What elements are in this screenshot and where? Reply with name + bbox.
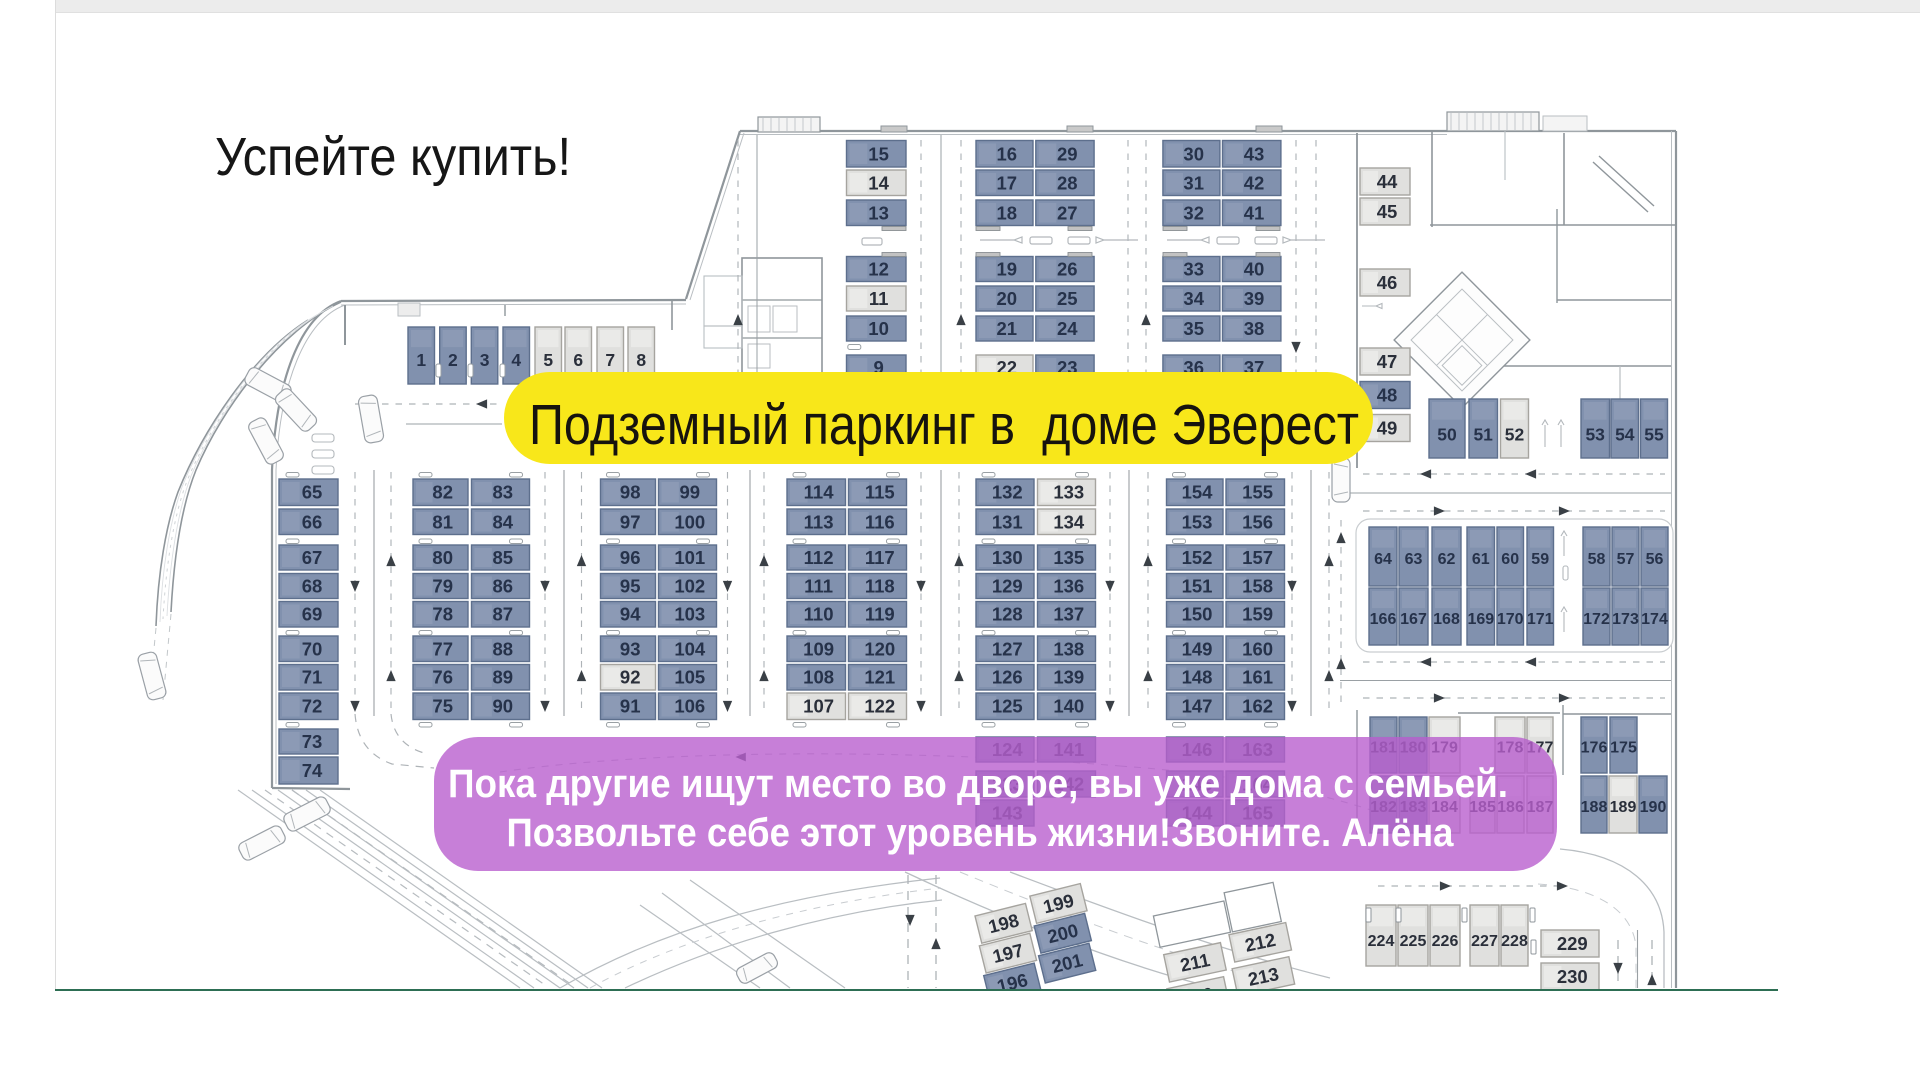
- svg-text:44: 44: [1377, 171, 1398, 192]
- svg-text:95: 95: [620, 576, 641, 597]
- svg-text:26: 26: [1057, 259, 1078, 280]
- svg-text:40: 40: [1244, 259, 1265, 280]
- svg-text:109: 109: [803, 638, 834, 659]
- svg-text:96: 96: [620, 547, 641, 568]
- svg-text:10: 10: [868, 318, 889, 339]
- svg-text:59: 59: [1531, 551, 1549, 568]
- svg-text:149: 149: [1182, 638, 1213, 659]
- svg-text:12: 12: [868, 259, 889, 280]
- svg-text:8: 8: [636, 350, 646, 370]
- svg-text:51: 51: [1473, 424, 1493, 444]
- svg-text:48: 48: [1377, 385, 1398, 406]
- svg-text:77: 77: [432, 638, 453, 659]
- svg-text:87: 87: [493, 604, 514, 625]
- svg-text:137: 137: [1053, 604, 1084, 625]
- svg-text:89: 89: [493, 667, 514, 688]
- svg-text:125: 125: [992, 696, 1023, 717]
- svg-text:189: 189: [1610, 799, 1637, 816]
- svg-text:138: 138: [1053, 638, 1084, 659]
- svg-text:60: 60: [1501, 551, 1519, 568]
- svg-text:172: 172: [1583, 611, 1610, 628]
- svg-text:83: 83: [493, 482, 514, 503]
- svg-text:56: 56: [1646, 551, 1664, 568]
- svg-text:91: 91: [620, 696, 641, 717]
- svg-text:112: 112: [804, 547, 834, 568]
- svg-text:72: 72: [302, 696, 323, 717]
- svg-text:92: 92: [620, 667, 641, 688]
- svg-text:162: 162: [1242, 696, 1273, 717]
- svg-text:42: 42: [1244, 172, 1265, 193]
- svg-text:2: 2: [448, 350, 458, 370]
- svg-text:171: 171: [1527, 611, 1554, 628]
- svg-text:116: 116: [865, 511, 895, 532]
- svg-text:155: 155: [1242, 482, 1273, 503]
- svg-text:170: 170: [1497, 611, 1524, 628]
- svg-text:28: 28: [1057, 172, 1078, 193]
- svg-text:99: 99: [680, 482, 701, 503]
- svg-text:33: 33: [1183, 259, 1204, 280]
- svg-text:62: 62: [1438, 551, 1456, 568]
- svg-text:160: 160: [1242, 638, 1273, 659]
- svg-text:68: 68: [302, 576, 323, 597]
- svg-text:31: 31: [1183, 172, 1204, 193]
- svg-text:94: 94: [620, 604, 641, 625]
- svg-text:90: 90: [493, 696, 514, 717]
- svg-text:86: 86: [493, 576, 514, 597]
- svg-text:153: 153: [1182, 511, 1213, 532]
- svg-text:1: 1: [416, 350, 426, 370]
- svg-text:3: 3: [480, 350, 490, 370]
- svg-text:27: 27: [1057, 202, 1078, 223]
- svg-text:122: 122: [864, 696, 895, 717]
- svg-text:147: 147: [1182, 696, 1213, 717]
- svg-text:49: 49: [1377, 418, 1398, 439]
- svg-text:32: 32: [1183, 202, 1204, 223]
- svg-text:46: 46: [1377, 272, 1398, 293]
- svg-text:169: 169: [1467, 611, 1494, 628]
- svg-text:131: 131: [992, 511, 1023, 532]
- svg-text:230: 230: [1557, 966, 1588, 987]
- svg-text:71: 71: [302, 667, 323, 688]
- svg-text:78: 78: [432, 604, 453, 625]
- svg-text:21: 21: [997, 318, 1018, 339]
- svg-text:85: 85: [493, 547, 514, 568]
- svg-text:224: 224: [1368, 933, 1395, 950]
- svg-text:229: 229: [1557, 933, 1588, 954]
- svg-text:98: 98: [620, 482, 641, 503]
- svg-text:65: 65: [302, 482, 323, 503]
- svg-text:104: 104: [674, 638, 706, 659]
- svg-text:6: 6: [573, 350, 583, 370]
- svg-text:66: 66: [302, 511, 323, 532]
- svg-text:43: 43: [1244, 143, 1265, 164]
- svg-text:76: 76: [432, 667, 453, 688]
- svg-text:173: 173: [1612, 611, 1639, 628]
- svg-text:127: 127: [992, 638, 1023, 659]
- svg-text:148: 148: [1182, 667, 1213, 688]
- svg-text:45: 45: [1377, 201, 1398, 222]
- svg-text:188: 188: [1581, 799, 1608, 816]
- svg-text:161: 161: [1242, 667, 1273, 688]
- svg-text:52: 52: [1505, 424, 1525, 444]
- svg-text:54: 54: [1615, 424, 1635, 444]
- svg-text:166: 166: [1370, 611, 1397, 628]
- svg-text:136: 136: [1053, 576, 1084, 597]
- svg-text:139: 139: [1053, 667, 1084, 688]
- svg-text:100: 100: [674, 511, 705, 532]
- svg-text:7: 7: [605, 350, 615, 370]
- svg-text:19: 19: [997, 259, 1018, 280]
- svg-text:97: 97: [620, 511, 641, 532]
- svg-text:103: 103: [674, 604, 705, 625]
- svg-text:113: 113: [804, 511, 834, 532]
- svg-text:11: 11: [869, 288, 889, 309]
- svg-text:151: 151: [1182, 576, 1213, 597]
- svg-text:117: 117: [865, 547, 895, 568]
- svg-text:35: 35: [1183, 318, 1204, 339]
- svg-text:39: 39: [1244, 288, 1265, 309]
- svg-text:134: 134: [1053, 511, 1085, 532]
- svg-text:107: 107: [803, 696, 834, 717]
- svg-text:70: 70: [302, 638, 323, 659]
- svg-text:88: 88: [493, 638, 514, 659]
- svg-text:154: 154: [1182, 482, 1214, 503]
- svg-text:64: 64: [1374, 551, 1392, 568]
- svg-text:15: 15: [868, 143, 889, 164]
- svg-text:75: 75: [432, 696, 453, 717]
- svg-text:129: 129: [992, 576, 1023, 597]
- svg-text:174: 174: [1641, 611, 1668, 628]
- svg-text:158: 158: [1242, 576, 1273, 597]
- svg-text:38: 38: [1244, 318, 1265, 339]
- svg-text:55: 55: [1644, 424, 1664, 444]
- svg-text:67: 67: [302, 547, 323, 568]
- svg-text:93: 93: [620, 638, 641, 659]
- svg-text:5: 5: [543, 350, 553, 370]
- svg-text:Успейте купить!: Успейте купить!: [215, 127, 571, 187]
- svg-text:58: 58: [1588, 551, 1606, 568]
- svg-text:79: 79: [432, 576, 453, 597]
- svg-text:128: 128: [992, 604, 1023, 625]
- svg-text:14: 14: [868, 172, 889, 193]
- svg-text:157: 157: [1242, 547, 1273, 568]
- svg-text:34: 34: [1183, 288, 1204, 309]
- svg-text:Позвольте себе этот уровень жи: Позвольте себе этот уровень жизни!Звонит…: [507, 811, 1455, 855]
- svg-text:228: 228: [1501, 933, 1528, 950]
- svg-text:80: 80: [432, 547, 453, 568]
- svg-text:168: 168: [1433, 611, 1460, 628]
- svg-text:132: 132: [992, 482, 1023, 503]
- svg-text:105: 105: [674, 667, 705, 688]
- svg-text:18: 18: [997, 202, 1018, 223]
- svg-text:119: 119: [865, 604, 895, 625]
- svg-text:81: 81: [432, 511, 453, 532]
- svg-text:4: 4: [511, 350, 521, 370]
- svg-text:133: 133: [1053, 482, 1084, 503]
- svg-text:61: 61: [1472, 551, 1490, 568]
- svg-text:57: 57: [1617, 551, 1635, 568]
- svg-text:110: 110: [804, 604, 834, 625]
- svg-text:106: 106: [674, 696, 705, 717]
- svg-text:176: 176: [1581, 739, 1608, 756]
- svg-text:20: 20: [997, 288, 1018, 309]
- svg-text:74: 74: [302, 760, 323, 781]
- svg-text:82: 82: [432, 482, 453, 503]
- svg-text:135: 135: [1053, 547, 1084, 568]
- svg-text:175: 175: [1610, 739, 1637, 756]
- svg-text:159: 159: [1242, 604, 1273, 625]
- svg-text:156: 156: [1242, 511, 1273, 532]
- svg-text:167: 167: [1400, 611, 1427, 628]
- svg-text:108: 108: [803, 667, 834, 688]
- svg-text:Пока другие ищут место во двор: Пока другие ищут место во дворе, вы уже …: [448, 762, 1508, 806]
- svg-text:118: 118: [865, 576, 895, 597]
- svg-text:25: 25: [1057, 288, 1078, 309]
- svg-text:29: 29: [1057, 143, 1078, 164]
- svg-text:17: 17: [997, 172, 1018, 193]
- svg-text:30: 30: [1183, 143, 1204, 164]
- svg-text:150: 150: [1182, 604, 1213, 625]
- svg-text:101: 101: [674, 547, 705, 568]
- svg-text:53: 53: [1585, 424, 1605, 444]
- svg-text:225: 225: [1400, 933, 1427, 950]
- svg-text:24: 24: [1057, 318, 1078, 339]
- svg-text:73: 73: [302, 731, 323, 752]
- svg-text:102: 102: [674, 576, 705, 597]
- svg-text:190: 190: [1640, 799, 1667, 816]
- svg-text:120: 120: [864, 638, 895, 659]
- svg-text:140: 140: [1053, 696, 1084, 717]
- svg-text:130: 130: [992, 547, 1023, 568]
- svg-text:121: 121: [864, 667, 895, 688]
- svg-text:115: 115: [865, 482, 895, 503]
- svg-text:226: 226: [1432, 933, 1459, 950]
- svg-text:Подземный паркинг в доме Эвер: Подземный паркинг в доме Эверест: [529, 393, 1359, 457]
- svg-text:111: 111: [804, 576, 833, 597]
- svg-text:126: 126: [992, 667, 1023, 688]
- svg-text:16: 16: [997, 143, 1018, 164]
- svg-text:13: 13: [868, 202, 889, 223]
- svg-text:227: 227: [1471, 933, 1498, 950]
- svg-text:63: 63: [1405, 551, 1423, 568]
- svg-text:69: 69: [302, 604, 323, 625]
- svg-text:41: 41: [1244, 202, 1265, 223]
- svg-text:47: 47: [1377, 351, 1398, 372]
- svg-text:152: 152: [1182, 547, 1213, 568]
- svg-text:114: 114: [804, 482, 835, 503]
- svg-text:50: 50: [1437, 424, 1457, 444]
- svg-text:84: 84: [493, 511, 514, 532]
